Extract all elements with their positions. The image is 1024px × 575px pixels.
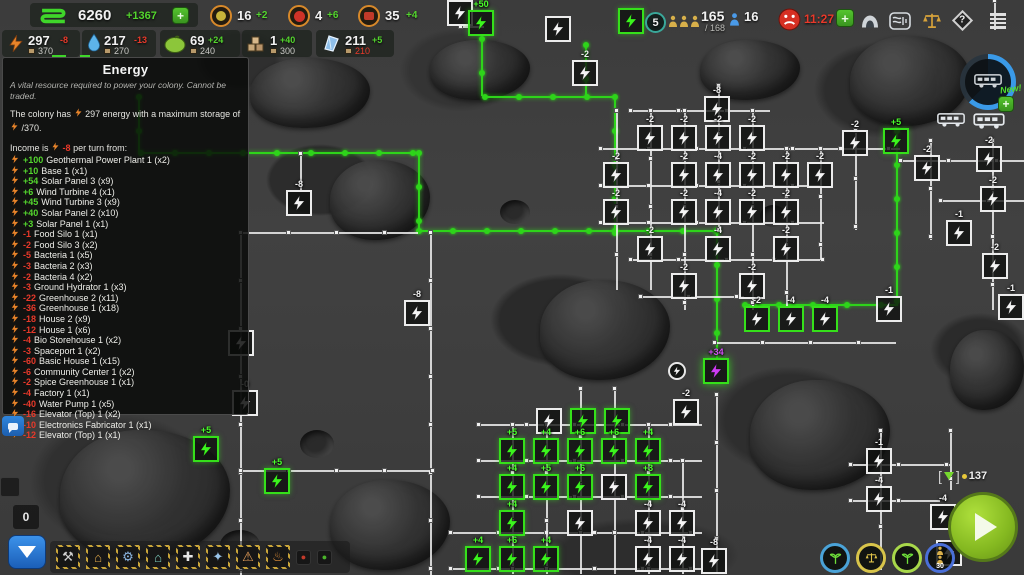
rover-garage-slot[interactable] (972, 110, 1006, 134)
add-colonists-button[interactable]: + (836, 9, 854, 27)
income-item: +40Solar Panel 2 (x10) (10, 208, 241, 219)
queue-counter[interactable]: 0 (12, 504, 40, 530)
storage-icon: ✚ (183, 549, 194, 565)
side-panel-button[interactable] (0, 477, 20, 497)
income-item: -10Electronics Fabricator 1 (x1) (10, 420, 241, 431)
power-node[interactable]: +3 (635, 474, 661, 500)
building-gauge[interactable]: 30 (925, 543, 955, 573)
toolbar-button-production[interactable]: ⌂ (86, 545, 110, 569)
power-node[interactable]: -2 (739, 199, 765, 225)
water-cap: 270 (104, 46, 129, 56)
income-item: +54Solar Panel 3 (x9) (10, 176, 241, 187)
power-node[interactable]: -4 (669, 510, 695, 536)
berries-delta: +6 (327, 10, 338, 21)
build-menu-toggle-button[interactable] (8, 535, 46, 569)
building-gauge[interactable] (856, 543, 886, 573)
energy-tooltip: Energy A vital resource required to powe… (2, 57, 249, 415)
toolbar-button-engineering[interactable]: ⚙ (116, 545, 140, 569)
heat-icon: ♨ (272, 549, 284, 565)
energy-bolt-icon (10, 121, 19, 135)
power-node[interactable]: -2 (914, 155, 940, 181)
power-node[interactable]: -2 (982, 253, 1008, 279)
menu-button[interactable] (986, 10, 1010, 32)
arrow-down-icon (944, 472, 954, 480)
play-icon (975, 513, 997, 541)
income-item: +10Base 1 (x1) (10, 166, 241, 177)
income-item: -2Spice Greenhouse 1 (x1) (10, 377, 241, 388)
power-node[interactable]: +50 (468, 10, 494, 36)
income-list: +100Geothermal Power Plant 1 (x2)+10Base… (10, 155, 241, 441)
power-node[interactable]: -4 (705, 162, 731, 188)
energy-bolt-icon (51, 141, 60, 154)
power-node[interactable]: -1 (876, 296, 902, 322)
food-delta: +24 (208, 35, 223, 45)
power-node[interactable]: -4 (669, 546, 695, 572)
income-item: -2Food Silo 3 (x2) (10, 240, 241, 251)
income-item: -3Ground Hydrator 1 (x3) (10, 282, 241, 293)
tools-value: 35 (385, 8, 399, 23)
worker-icon (729, 12, 740, 31)
power-node[interactable]: -2 (603, 162, 629, 188)
unrest-icon[interactable] (778, 8, 801, 36)
pod-marker[interactable]: [ ] 137 (938, 468, 987, 484)
power-node[interactable]: -4 (812, 306, 838, 332)
power-node[interactable]: -1 (946, 220, 972, 246)
spice-delta: +2 (256, 10, 267, 21)
speech-bubble-icon (8, 423, 18, 430)
pod-value: 137 (969, 470, 987, 482)
income-item: -16Elevator (Top) 1 (x2) (10, 409, 241, 420)
round-value: 5 (652, 17, 658, 29)
storage-icon (28, 48, 35, 54)
income-item: -5Bacteria 1 (x5) (10, 250, 241, 261)
round-badge[interactable]: 5 (645, 12, 666, 33)
toolbar-button-marker-green[interactable]: ● (317, 550, 332, 565)
science-icon: ✦ (213, 549, 224, 565)
toolbar-button-storage[interactable]: ✚ (176, 545, 200, 569)
income-item: +3Solar Panel 1 (x1) (10, 219, 241, 230)
resource-dot-icon (962, 474, 967, 479)
power-node[interactable]: -2 (673, 399, 699, 425)
toolbar-button-heat[interactable]: ♨ (266, 545, 290, 569)
end-turn-button[interactable] (948, 492, 1018, 562)
income-item: +100Geothermal Power Plant 1 (x2) (10, 155, 241, 166)
power-node[interactable]: +5 (883, 128, 909, 154)
power-node[interactable] (618, 8, 644, 34)
energy-cap: 370 (28, 46, 53, 56)
power-node[interactable]: -8 (404, 300, 430, 326)
power-node[interactable]: +4 (533, 546, 559, 572)
power-node[interactable] (545, 16, 571, 42)
power-node[interactable]: +4 (533, 438, 559, 464)
income-item: -36Greenhouse 1 (x18) (10, 303, 241, 314)
food-cap: 240 (190, 46, 215, 56)
power-node[interactable]: +6 (567, 438, 593, 464)
berries-value: 4 (315, 8, 322, 23)
hamburger-icon (990, 13, 1006, 29)
unrest-timer: 11:27 (804, 12, 834, 26)
income-item: +45Wind Turbine 3 (x9) (10, 197, 241, 208)
power-node[interactable]: -4 (866, 486, 892, 512)
rover-garage-slot[interactable] (936, 110, 966, 132)
income-item: -60Basic House 1 (x15) (10, 356, 241, 367)
tooltip-title: Energy (10, 62, 241, 77)
toolbar-button-marker-red[interactable]: ● (296, 550, 311, 565)
rover-icon (973, 71, 1003, 93)
minerals-delta: +5 (372, 35, 382, 45)
trade-button[interactable] (920, 10, 944, 32)
power-node[interactable]: -2 (976, 146, 1002, 172)
goods-icon (246, 35, 266, 58)
spice-value: 16 (237, 8, 251, 23)
power-node[interactable]: -4 (705, 199, 731, 225)
power-node[interactable]: +4 (499, 510, 525, 536)
toolbar-button-science[interactable]: ✦ (206, 545, 230, 569)
alerts-icon: ⚠ (242, 549, 254, 565)
tooltip-description: A vital resource required to power your … (10, 80, 241, 102)
income-item: -4Bio Storehouse 1 (x2) (10, 335, 241, 346)
power-node[interactable]: -2 (603, 199, 629, 225)
power-node[interactable]: -4 (635, 546, 661, 572)
marker-green-icon: ● (322, 552, 327, 562)
power-node[interactable]: +5 (499, 438, 525, 464)
minerals-cap: 210 (345, 46, 370, 56)
power-node[interactable]: -8 (286, 190, 312, 216)
storage-icon (190, 48, 197, 54)
build-category-toolbar: ⚒⌂⚙⌂✚✦⚠♨●● (50, 541, 350, 573)
building-gauge[interactable] (892, 543, 922, 573)
income-item: -1Food Silo 1 (x1) (10, 229, 241, 240)
power-node[interactable]: +6 (601, 438, 627, 464)
power-node[interactable]: -2 (744, 306, 770, 332)
power-node[interactable]: -2 (671, 125, 697, 151)
power-node[interactable]: -2 (807, 162, 833, 188)
berries-icon (288, 5, 310, 27)
income-item: +6Wind Turbine 4 (x1) (10, 187, 241, 198)
power-node[interactable]: -2 (773, 162, 799, 188)
power-node[interactable]: -2 (739, 125, 765, 151)
power-node[interactable]: -2 (705, 125, 731, 151)
power-node[interactable]: -4 (705, 236, 731, 262)
power-node[interactable]: -2 (773, 236, 799, 262)
minerals-icon (321, 33, 341, 58)
income-header: Income is -8 per turn from: (10, 141, 241, 154)
population-value: 165 (701, 8, 724, 24)
power-node[interactable]: -2 (842, 130, 868, 156)
income-item: -2Bacteria 4 (x2) (10, 272, 241, 283)
income-item: -12Elevator (Top) 1 (x1) (10, 430, 241, 441)
toolbar-button-alerts[interactable]: ⚠ (236, 545, 260, 569)
food-icon (164, 35, 186, 58)
power-node[interactable]: +6 (499, 546, 525, 572)
power-node[interactable]: -2 (572, 60, 598, 86)
power-node[interactable]: +4 (465, 546, 491, 572)
income-item: -12House 1 (x6) (10, 325, 241, 336)
power-node[interactable]: -4 (778, 306, 804, 332)
research-button[interactable] (888, 10, 912, 32)
power-node[interactable] (567, 510, 593, 536)
colonists-menu-button[interactable] (858, 10, 882, 32)
water-delta: -13 (134, 35, 147, 45)
help-button[interactable]: ? (950, 9, 974, 31)
worker-value: 16 (744, 9, 758, 24)
game-viewport: +50-2-8-2-2-2-2-2-2-4-2-2-2-2-2-4-2-2-2-… (0, 0, 1024, 575)
power-node[interactable]: -1 (866, 448, 892, 474)
mining-icon: ⚒ (62, 549, 74, 565)
engineering-icon: ⚙ (122, 549, 134, 565)
spice-icon (210, 5, 232, 27)
credits-icon (36, 6, 70, 31)
income-item: -18House 2 (x9) (10, 314, 241, 325)
power-node[interactable]: -2 (773, 199, 799, 225)
power-node[interactable]: -2 (637, 236, 663, 262)
income-item: -3Bacteria 2 (x3) (10, 261, 241, 272)
credits-delta: +1367 (126, 10, 157, 22)
power-node[interactable]: +4 (635, 438, 661, 464)
marker-red-icon: ● (301, 552, 306, 562)
income-item: -3Spaceport 1 (x2) (10, 346, 241, 357)
power-node[interactable]: +5 (533, 474, 559, 500)
chat-button[interactable] (2, 416, 24, 436)
housing-icon: ⌂ (154, 550, 162, 565)
energy-icon (7, 33, 25, 59)
power-node[interactable]: -2 (671, 199, 697, 225)
energy-bolt-icon (74, 107, 83, 121)
storage-icon (345, 48, 352, 54)
power-node[interactable]: -4 (635, 510, 661, 536)
power-node[interactable]: -2 (671, 162, 697, 188)
building-gauge[interactable] (820, 543, 850, 573)
power-node[interactable] (601, 474, 627, 500)
bracket: [ (938, 468, 942, 484)
goods-delta: +40 (280, 35, 295, 45)
question-glyph: ? (959, 14, 965, 25)
power-node[interactable]: -1 (998, 294, 1024, 320)
credits-value: 6260 (78, 7, 111, 24)
energy-delta: -8 (60, 35, 68, 45)
production-icon: ⌂ (94, 550, 102, 565)
population-icon (668, 15, 700, 27)
tools-delta: +4 (406, 10, 417, 21)
power-node[interactable]: -2 (980, 186, 1006, 212)
goods-cap: 300 (270, 46, 295, 56)
population-cap: / 168 (705, 23, 725, 33)
income-item: -4Factory 1 (x1) (10, 388, 241, 399)
chevron-down-icon (18, 546, 36, 558)
income-item: -6Community Center 1 (x2) (10, 367, 241, 378)
power-node[interactable]: -2 (739, 162, 765, 188)
power-node[interactable]: -2 (637, 125, 663, 151)
power-circle-marker (668, 362, 686, 380)
power-node[interactable]: -2 (671, 273, 697, 299)
power-node[interactable]: -8 (701, 548, 727, 574)
buy-credits-button[interactable]: + (172, 7, 189, 24)
toolbar-button-mining[interactable]: ⚒ (56, 545, 80, 569)
power-node[interactable]: +5 (264, 468, 290, 494)
toolbar-button-housing[interactable]: ⌂ (146, 545, 170, 569)
storage-icon (270, 48, 277, 54)
income-item: -22Greenhouse 2 (x11) (10, 293, 241, 304)
storage-icon (104, 48, 111, 54)
power-node[interactable]: +6 (567, 474, 593, 500)
bracket: ] (956, 468, 960, 484)
income-item: -40Water Pump 1 (x5) (10, 399, 241, 410)
power-node[interactable]: +34 (703, 358, 729, 384)
power-node[interactable]: +4 (499, 474, 525, 500)
tooltip-summary: The colony has 297 energy with a maximum… (10, 107, 241, 135)
tools-icon (358, 5, 380, 27)
